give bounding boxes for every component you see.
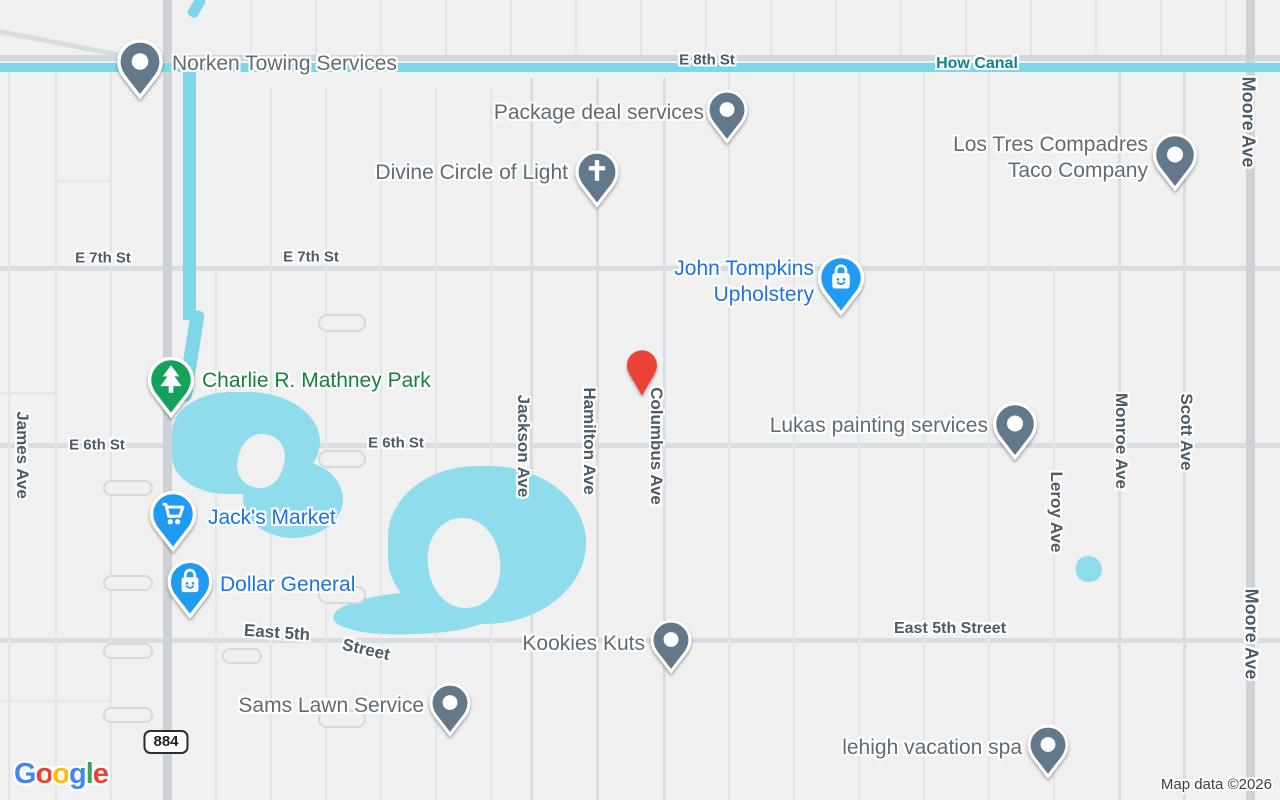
road <box>1225 0 1227 55</box>
canal <box>183 70 196 320</box>
route-884-label: 884 <box>153 733 178 750</box>
lehigh-vacation-spa-pin[interactable] <box>1027 724 1068 778</box>
street-label-leroy-ave: Leroy Ave <box>1046 472 1066 553</box>
road <box>835 0 837 55</box>
kookies-kuts-label[interactable]: Kookies Kuts <box>522 631 645 657</box>
john-tompkins-upholstery-label[interactable]: John TompkinsUpholstery <box>674 256 814 308</box>
divine-circle-of-light-label[interactable]: Divine Circle of Light <box>375 160 568 186</box>
sams-lawn-service-label[interactable]: Sams Lawn Service <box>238 693 424 719</box>
canal <box>186 0 207 19</box>
route-884-shield: 884 <box>143 730 188 754</box>
road <box>770 0 772 55</box>
road <box>510 0 512 55</box>
charlie-r-mathney-park-label[interactable]: Charlie R. Mathney Park <box>202 368 431 394</box>
cul-de-sac <box>318 314 366 332</box>
road <box>1030 0 1032 55</box>
jacks-market-label[interactable]: Jack's Market <box>208 505 336 531</box>
divine-circle-of-light-pin[interactable] <box>575 150 618 207</box>
pond <box>1076 556 1102 582</box>
dropped-pin[interactable] <box>626 349 659 402</box>
street-label-e-7th-st: E 7th St <box>283 249 339 266</box>
cul-de-sac <box>103 575 153 591</box>
road <box>900 0 902 55</box>
lehigh-vacation-spa-label[interactable]: lehigh vacation spa <box>842 735 1022 761</box>
cul-de-sac <box>103 480 153 496</box>
dollar-general-label[interactable]: Dollar General <box>220 572 355 598</box>
road <box>1160 0 1162 55</box>
road <box>705 0 707 55</box>
road <box>215 268 217 800</box>
street-label-james-ave: James Ave <box>12 411 32 499</box>
john-tompkins-upholstery-pin[interactable] <box>818 255 865 316</box>
road <box>250 0 252 55</box>
road <box>490 88 492 800</box>
package-deal-services-pin[interactable] <box>706 89 747 143</box>
street-label-e-6th-st: E 6th St <box>368 435 424 452</box>
road <box>640 0 642 55</box>
street-label-e-7th-st: E 7th St <box>75 250 131 267</box>
map-attribution: Map data ©2026 <box>1161 776 1272 793</box>
google-logo-letter: g <box>69 758 86 790</box>
norken-towing-services-pin[interactable] <box>117 39 163 99</box>
lukas-painting-services-label[interactable]: Lukas painting services <box>770 413 988 439</box>
dollar-general-pin[interactable] <box>168 560 213 619</box>
road <box>315 0 317 55</box>
sams-lawn-service-pin[interactable] <box>429 682 470 736</box>
road <box>0 392 55 394</box>
google-logo[interactable]: Google <box>14 758 108 791</box>
google-logo-letter: G <box>14 758 36 790</box>
kookies-kuts-pin[interactable] <box>650 619 691 673</box>
charlie-r-mathney-park-pin[interactable] <box>148 357 195 418</box>
cul-de-sac <box>318 450 366 468</box>
street-label-how-canal: How Canal <box>936 55 1018 73</box>
lukas-painting-services-pin[interactable] <box>993 402 1037 460</box>
google-logo-letter: l <box>86 758 93 790</box>
road <box>0 700 110 702</box>
road <box>380 0 382 55</box>
street-label-hamilton-ave: Hamilton Ave <box>579 387 599 494</box>
street-label-e-8th-st: E 8th St <box>679 52 735 69</box>
street-label-columbus-ave: Columbus Ave <box>646 387 666 505</box>
cul-de-sac <box>222 648 262 664</box>
road <box>1095 0 1097 55</box>
jacks-market-pin[interactable] <box>150 491 197 552</box>
map-canvas[interactable]: 884 Google Map data ©2026 E 8th StHow Ca… <box>0 0 1280 800</box>
package-deal-services-label[interactable]: Package deal services <box>494 100 704 126</box>
cul-de-sac <box>103 643 153 659</box>
street-label-moore-ave: Moore Ave <box>1238 77 1259 168</box>
road <box>965 0 967 55</box>
road <box>575 0 577 55</box>
road <box>55 180 112 182</box>
street-label-east-5th-street: East 5th Street <box>894 620 1006 638</box>
cul-de-sac <box>103 707 153 723</box>
los-tres-compadres-taco-company-label[interactable]: Los Tres CompadresTaco Company <box>953 132 1148 184</box>
google-logo-letter: e <box>93 758 108 790</box>
norken-towing-services-label[interactable]: Norken Towing Services <box>172 51 397 77</box>
street-label-monroe-ave: Monroe Ave <box>1111 393 1131 489</box>
google-logo-letter: o <box>52 758 69 790</box>
road <box>728 72 730 800</box>
google-logo-letter: o <box>36 758 53 790</box>
los-tres-compadres-taco-company-pin[interactable] <box>1153 133 1197 191</box>
street-label-jackson-ave: Jackson Ave <box>513 395 533 498</box>
road <box>8 70 10 800</box>
road <box>445 0 447 55</box>
street-label-scott-ave: Scott Ave <box>1176 393 1196 470</box>
street-label-e-6th-st: E 6th St <box>69 437 125 454</box>
street-label-moore-ave: Moore Ave <box>1241 589 1262 680</box>
